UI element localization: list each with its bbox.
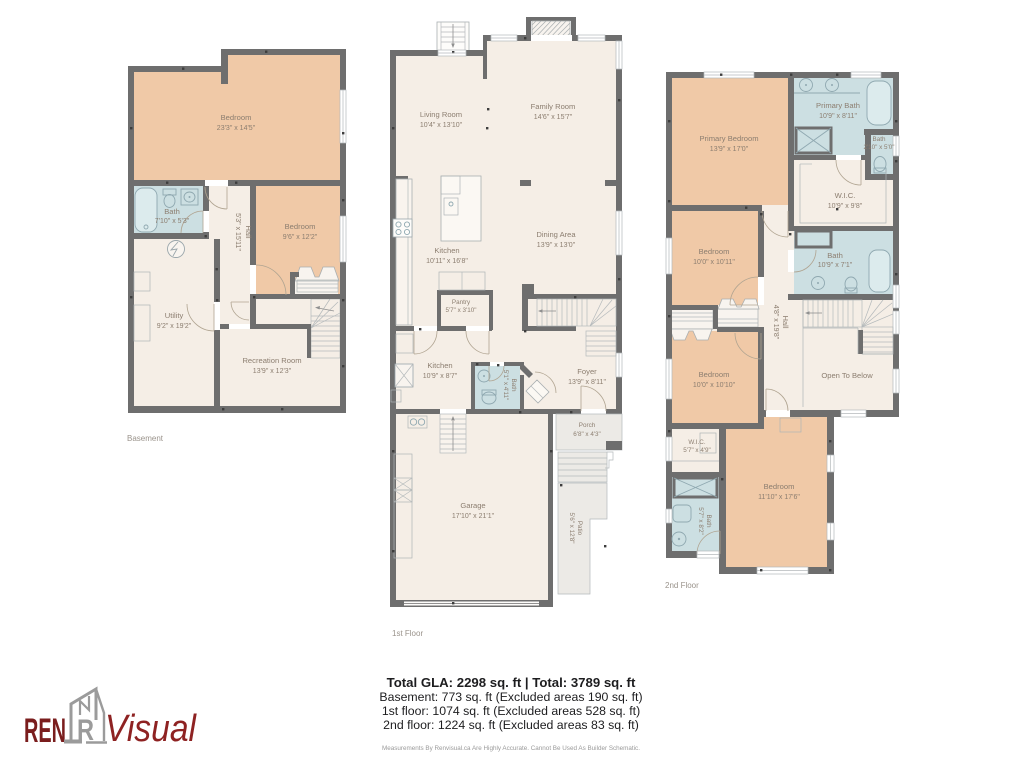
- svg-text:5'1" x 4'11": 5'1" x 4'11": [502, 370, 509, 401]
- svg-text:Bath: Bath: [827, 251, 843, 260]
- svg-text:Kitchen: Kitchen: [434, 246, 459, 255]
- svg-text:9'6" x 12'2": 9'6" x 12'2": [283, 234, 318, 241]
- svg-text:Basement: Basement: [127, 434, 164, 443]
- svg-text:Recreation Room: Recreation Room: [242, 356, 301, 365]
- svg-text:Open To Below: Open To Below: [821, 371, 873, 380]
- svg-text:5'7" x 4'9": 5'7" x 4'9": [683, 447, 711, 454]
- svg-text:9'2" x 19'2": 9'2" x 19'2": [157, 323, 192, 330]
- svg-text:Porch: Porch: [579, 422, 596, 429]
- svg-text:17'10" x 21'1": 17'10" x 21'1": [452, 513, 495, 520]
- svg-text:Dining Area: Dining Area: [536, 230, 576, 239]
- svg-text:5'7" x 8'2": 5'7" x 8'2": [697, 507, 704, 535]
- svg-text:2nd Floor: 2nd Floor: [665, 581, 699, 590]
- svg-text:Bedroom: Bedroom: [699, 247, 730, 256]
- svg-text:Garage: Garage: [460, 501, 485, 510]
- svg-text:Bedroom: Bedroom: [699, 370, 730, 379]
- svg-text:4'8" x 19'8": 4'8" x 19'8": [772, 305, 779, 340]
- svg-text:Basement: 773 sq. ft (Excluded: Basement: 773 sq. ft (Excluded areas 190…: [379, 690, 642, 704]
- svg-text:Pantry: Pantry: [452, 299, 471, 306]
- svg-text:2nd floor: 1224 sq. ft (Exclud: 2nd floor: 1224 sq. ft (Excluded areas 8…: [383, 718, 639, 732]
- svg-text:1st floor: 1074 sq. ft (Exclud: 1st floor: 1074 sq. ft (Excluded areas 5…: [382, 704, 640, 718]
- svg-text:13'9" x 17'0": 13'9" x 17'0": [710, 146, 749, 153]
- svg-text:11'10" x 17'6": 11'10" x 17'6": [758, 494, 800, 501]
- svg-text:Measurements By Renvisual.ca A: Measurements By Renvisual.ca Are Highly …: [382, 745, 640, 752]
- svg-text:13'9" x 8'11": 13'9" x 8'11": [568, 379, 606, 386]
- svg-text:2'10" x 5'0": 2'10" x 5'0": [863, 144, 894, 151]
- svg-text:Family Room: Family Room: [531, 102, 576, 111]
- svg-text:Living Room: Living Room: [420, 110, 462, 119]
- svg-text:Bedroom: Bedroom: [764, 482, 795, 491]
- svg-text:Bath: Bath: [510, 379, 517, 392]
- svg-text:Primary Bath: Primary Bath: [816, 101, 860, 110]
- svg-text:Bedroom: Bedroom: [221, 113, 252, 122]
- svg-text:6'8" x 4'3": 6'8" x 4'3": [573, 431, 601, 438]
- svg-text:10'9" x 9'8": 10'9" x 9'8": [828, 203, 863, 210]
- svg-text:Visual: Visual: [105, 708, 197, 750]
- svg-text:5'7" x 3'10": 5'7" x 3'10": [445, 307, 476, 314]
- svg-text:Total GLA: 2298 sq. ft | Total: Total GLA: 2298 sq. ft | Total: 3789 sq.…: [387, 675, 636, 690]
- svg-text:W.I.C.: W.I.C.: [835, 191, 856, 200]
- svg-text:Bath: Bath: [164, 207, 180, 216]
- svg-text:Primary Bedroom: Primary Bedroom: [699, 134, 758, 143]
- svg-text:R: R: [77, 714, 94, 747]
- svg-text:10'9" x 8'7": 10'9" x 8'7": [423, 373, 458, 380]
- svg-text:5'3" x 15'11": 5'3" x 15'11": [234, 213, 241, 251]
- svg-text:Utility: Utility: [165, 311, 184, 320]
- svg-text:Bath: Bath: [873, 136, 886, 143]
- svg-text:14'6" x 15'7": 14'6" x 15'7": [534, 114, 573, 121]
- svg-text:Kitchen: Kitchen: [427, 361, 452, 370]
- svg-text:W.I.C.: W.I.C.: [688, 439, 705, 446]
- svg-text:13'9" x 13'0": 13'9" x 13'0": [537, 242, 576, 249]
- svg-text:Bath: Bath: [705, 515, 712, 528]
- svg-text:Bedroom: Bedroom: [285, 222, 316, 231]
- svg-text:Foyer: Foyer: [577, 367, 597, 376]
- svg-text:10'11" x 16'8": 10'11" x 16'8": [426, 258, 468, 265]
- svg-text:10'0" x 10'11": 10'0" x 10'11": [693, 259, 735, 266]
- svg-text:10'9" x 7'1": 10'9" x 7'1": [818, 262, 853, 269]
- svg-text:7'10" x 5'3": 7'10" x 5'3": [155, 218, 190, 225]
- svg-text:Patio: Patio: [576, 521, 583, 536]
- svg-text:1st Floor: 1st Floor: [392, 629, 423, 638]
- svg-text:Hall: Hall: [244, 225, 253, 238]
- svg-text:REN: REN: [24, 712, 66, 750]
- svg-text:10'4" x 13'10": 10'4" x 13'10": [420, 122, 463, 129]
- svg-text:10'0" x 10'10": 10'0" x 10'10": [693, 382, 736, 389]
- svg-text:10'9" x 8'11": 10'9" x 8'11": [819, 113, 857, 120]
- svg-text:13'9" x 12'3": 13'9" x 12'3": [253, 368, 292, 375]
- svg-text:Hall: Hall: [781, 315, 790, 328]
- svg-text:23'3" x 14'5": 23'3" x 14'5": [217, 125, 256, 132]
- svg-text:5'6" x 12'8": 5'6" x 12'8": [568, 512, 575, 543]
